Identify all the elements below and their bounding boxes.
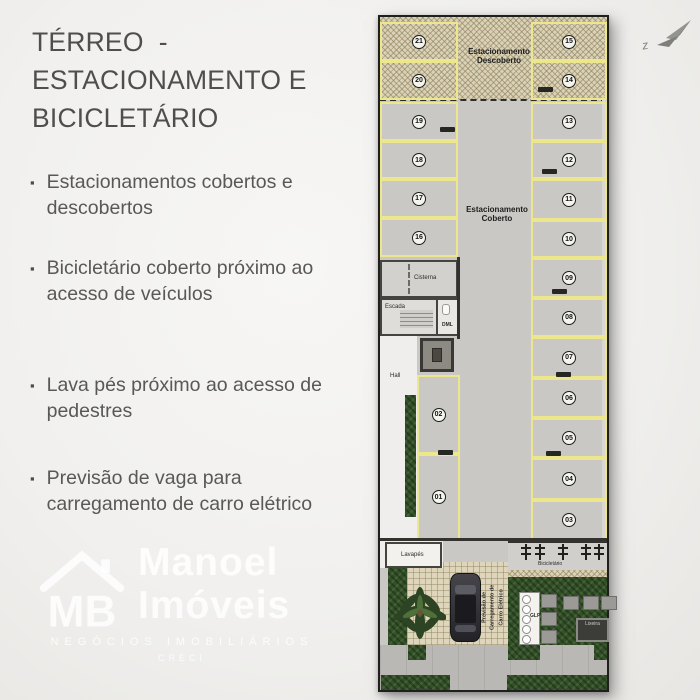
bullet-text: Lava pés próximo ao acesso de pedestres [47, 373, 335, 425]
wheel-stop [556, 372, 571, 377]
wheel-stop [542, 169, 557, 174]
bullet-text: Estacionamentos cobertos e descobertos [47, 170, 335, 222]
bullet-item-1: ▪ Estacionamentos cobertos e descobertos [30, 170, 335, 222]
bullet-square-icon: ▪ [30, 170, 35, 222]
svg-text:z: z [640, 38, 649, 53]
wheel-stop [440, 127, 455, 132]
title-line-1: TÉRREO - [32, 24, 362, 62]
bullet-item-4: ▪ Previsão de vaga para carregamento de … [30, 466, 335, 518]
bullet-text: Bicicletário coberto próximo ao acesso d… [47, 256, 335, 308]
watermark-tagline: NEGÓCIOS IMOBILIÁRIOS [32, 636, 332, 648]
watermark-name-top: Manoel [138, 541, 278, 585]
watermark-subline: CRECI [32, 653, 332, 663]
bullet-square-icon: ▪ [30, 466, 35, 518]
title-line-3: BICICLETÁRIO [32, 100, 362, 138]
bullet-item-3: ▪ Lava pés próximo ao acesso de pedestre… [30, 373, 335, 425]
wheel-stop [538, 87, 553, 92]
wheel-stop [546, 451, 561, 456]
title-line-2: ESTACIONAMENTO E [32, 62, 362, 100]
slide: { "slide": { "title_lines": ["TÉRREO\u00… [0, 0, 700, 700]
page-title: TÉRREO - ESTACIONAMENTO E BICICLETÁRIO [32, 24, 362, 138]
watermark-name-bottom: Imóveis [138, 584, 290, 628]
house-monogram-icon: MB [34, 544, 130, 640]
brand-bird-icon: z [636, 14, 696, 68]
wheel-stop [552, 289, 567, 294]
floor-plan: Estacionamento Descoberto Estacionamento… [378, 15, 609, 692]
bullet-item-2: ▪ Bicicletário coberto próximo ao acesso… [30, 256, 335, 308]
wheel-stop [438, 450, 453, 455]
watermark-logo: MB [34, 544, 130, 645]
bullet-square-icon: ▪ [30, 256, 35, 308]
svg-text:MB: MB [48, 588, 117, 637]
bullet-square-icon: ▪ [30, 373, 35, 425]
bullet-text: Previsão de vaga para carregamento de ca… [47, 466, 335, 518]
wheel-stops [380, 17, 607, 690]
